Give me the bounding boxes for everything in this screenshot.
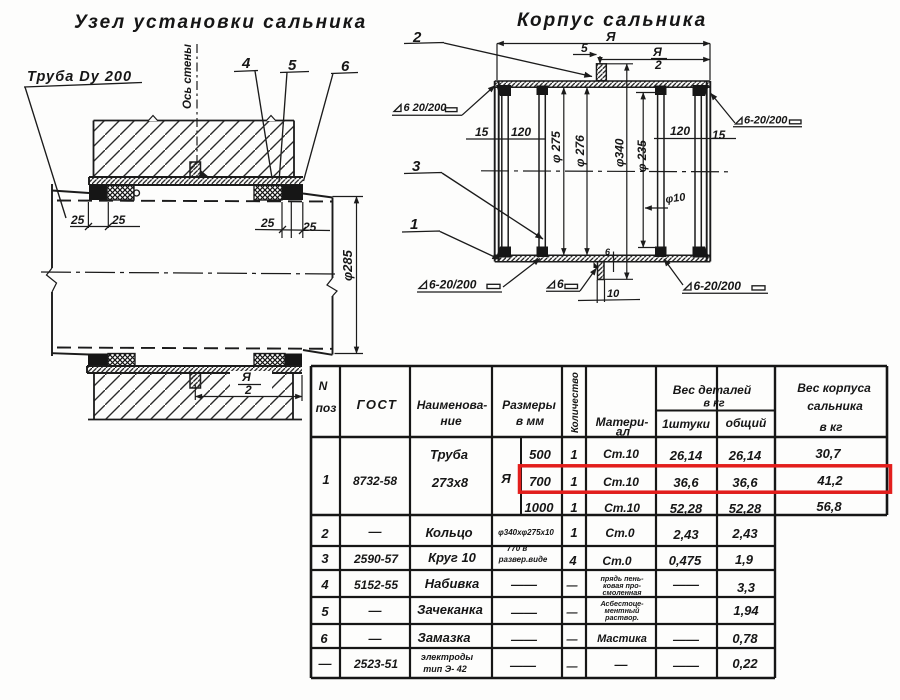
svg-text:2,43: 2,43 [731,526,758,541]
svg-text:Узел установки сальника: Узел установки сальника [74,12,367,33]
svg-text:56,8: 56,8 [816,499,842,514]
svg-text:—: — [566,580,579,592]
svg-text:2: 2 [244,383,252,397]
svg-text:Труба Dy 200: Труба Dy 200 [27,69,132,85]
svg-text:41,2: 41,2 [816,473,843,488]
svg-text:3,3: 3,3 [737,580,756,595]
svg-text:120: 120 [511,125,531,139]
svg-text:52,28: 52,28 [670,501,703,516]
svg-text:1: 1 [322,472,329,487]
svg-text:—: — [566,634,579,646]
svg-text:Я: Я [605,29,616,44]
svg-text:смоленная: смоленная [603,588,643,597]
svg-text:электроды: электроды [421,652,474,662]
svg-text:Ст.10: Ст.10 [603,447,639,461]
svg-text:Ст.0: Ст.0 [605,526,635,540]
svg-text:Труба: Труба [430,447,468,462]
svg-text:25: 25 [302,220,317,234]
svg-text:2: 2 [320,526,329,541]
svg-text:4: 4 [568,553,577,568]
svg-text:Ст.10: Ст.10 [604,501,640,515]
svg-text:—: — [368,603,383,618]
svg-text:6: 6 [320,631,328,646]
svg-text:Наименова-: Наименова- [417,398,488,412]
svg-text:1,9: 1,9 [735,552,754,567]
svg-text:273x8: 273x8 [431,475,469,490]
svg-text:5: 5 [321,604,329,619]
svg-text:Корпус сальника: Корпус сальника [517,10,707,31]
svg-text:Размеры: Размеры [502,398,557,412]
svg-text:15: 15 [475,125,489,139]
svg-text:Ст.10: Ст.10 [603,475,639,489]
svg-text:Кольцо: Кольцо [425,525,472,540]
svg-text:30,7: 30,7 [815,446,841,461]
svg-text:25: 25 [70,213,85,227]
svg-text:——: —— [510,632,538,647]
svg-text:1штуки: 1штуки [662,417,710,431]
svg-text:——: —— [510,577,538,592]
svg-text:770 в: 770 в [507,544,528,553]
svg-text:1: 1 [570,500,577,515]
svg-text:——: —— [509,658,537,673]
svg-text:N: N [319,379,328,393]
svg-text:6-20/200: 6-20/200 [744,115,788,127]
svg-text:8732-58: 8732-58 [353,474,397,488]
svg-text:φ340: φ340 [613,138,627,167]
svg-text:6-20/200: 6-20/200 [429,278,477,292]
svg-text:Круг 10: Круг 10 [428,550,477,565]
svg-text:тип Э- 42: тип Э- 42 [423,664,466,674]
svg-text:Я: Я [241,370,251,384]
svg-text:1: 1 [570,525,577,540]
svg-text:—: — [318,656,333,671]
svg-text:ал: ал [616,425,631,439]
svg-text:0,22: 0,22 [732,656,758,671]
svg-text:1000: 1000 [525,500,555,515]
svg-text:25: 25 [111,213,126,227]
svg-text:в кг: в кг [819,420,843,434]
svg-text:0,475: 0,475 [669,553,702,568]
svg-text:6: 6 [557,277,564,291]
svg-text:Я: Я [500,471,511,486]
svg-text:500: 500 [529,447,551,462]
svg-text:0,78: 0,78 [732,631,758,646]
svg-text:Зачеканка: Зачеканка [417,602,483,617]
svg-text:5152-55: 5152-55 [354,578,398,592]
svg-text:φ285: φ285 [340,249,355,281]
svg-text:36,6: 36,6 [673,475,699,490]
svg-text:—: — [566,661,579,673]
svg-text:52,28: 52,28 [729,501,762,516]
svg-text:Ось стены: Ось стены [182,44,194,109]
svg-text:——: —— [672,577,700,592]
svg-text:сальника: сальника [807,399,863,413]
svg-text:25: 25 [260,216,275,230]
svg-text:Ст.0: Ст.0 [602,554,632,568]
svg-text:4: 4 [320,577,329,592]
svg-text:6 20/200: 6 20/200 [404,102,448,114]
svg-text:поз: поз [316,401,337,415]
svg-text:——: —— [672,632,700,647]
svg-text:6-20/200: 6-20/200 [694,279,742,293]
svg-text:1: 1 [570,447,577,462]
svg-text:Вес деталей: Вес деталей [673,383,752,397]
svg-text:1: 1 [410,216,418,233]
svg-text:5: 5 [581,41,588,55]
svg-text:2,43: 2,43 [672,527,699,542]
svg-text:1,94: 1,94 [733,603,759,618]
svg-text:Я: Я [652,45,662,59]
svg-text:15: 15 [712,128,726,142]
svg-text:φ 235: φ 235 [635,140,649,172]
svg-text:2523-51: 2523-51 [353,657,398,671]
svg-text:развер.виде: развер.виде [498,555,548,564]
svg-text:1: 1 [570,474,577,489]
svg-text:36,6: 36,6 [732,475,758,490]
svg-text:ние: ние [440,414,462,428]
svg-text:—: — [368,631,383,646]
svg-text:в кг: в кг [703,398,724,410]
svg-text:——: —— [510,605,538,620]
svg-text:Мастика: Мастика [597,633,647,645]
svg-text:φ10: φ10 [665,191,687,206]
svg-text:φ340xφ275x10: φ340xφ275x10 [498,528,554,537]
svg-text:10: 10 [607,288,620,300]
svg-text:26,14: 26,14 [728,448,762,463]
svg-text:—: — [614,657,629,672]
svg-text:φ 275: φ 275 [549,131,563,163]
svg-text:—: — [566,607,579,619]
svg-text:120: 120 [670,124,690,138]
svg-text:700: 700 [529,474,551,489]
svg-text:общий: общий [726,416,767,430]
svg-text:2: 2 [654,58,662,72]
svg-text:Набивка: Набивка [425,576,479,591]
svg-text:4: 4 [241,55,251,72]
svg-text:3: 3 [321,551,329,566]
svg-text:——: —— [672,658,700,673]
svg-text:ГОСТ: ГОСТ [357,397,398,412]
svg-text:—: — [368,524,383,539]
svg-text:φ 276: φ 276 [573,135,587,167]
svg-text:раствор.: раствор. [604,613,639,622]
svg-text:26,14: 26,14 [669,448,703,463]
svg-text:Замазка: Замазка [417,630,470,645]
svg-text:в мм: в мм [516,414,544,428]
svg-text:Количество: Количество [570,372,581,433]
svg-text:2590-57: 2590-57 [353,552,399,566]
svg-text:Вес корпуса: Вес корпуса [797,381,871,395]
